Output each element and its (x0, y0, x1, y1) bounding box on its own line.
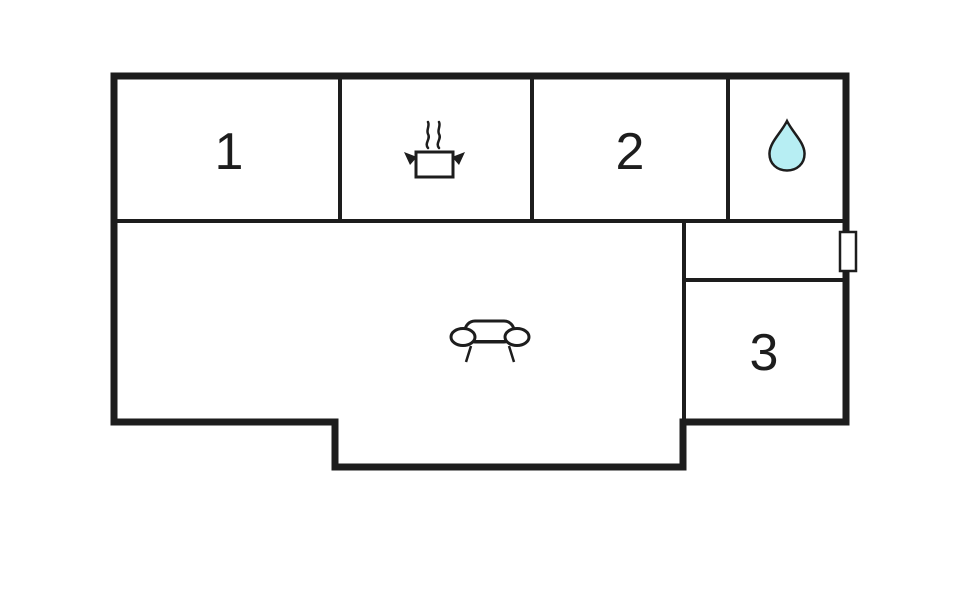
pot-body (416, 152, 453, 177)
floor-plan: 1 2 3 (0, 0, 960, 611)
plan-background (0, 0, 960, 611)
window-marker (840, 232, 856, 271)
sofa-armrest-right (505, 329, 529, 346)
room-3-label: 3 (750, 324, 779, 382)
floor-plan-page: 1 2 3 (0, 0, 960, 611)
room-2-label: 2 (616, 123, 645, 181)
sofa-armrest-left (451, 329, 475, 346)
room-1-label: 1 (215, 123, 244, 181)
